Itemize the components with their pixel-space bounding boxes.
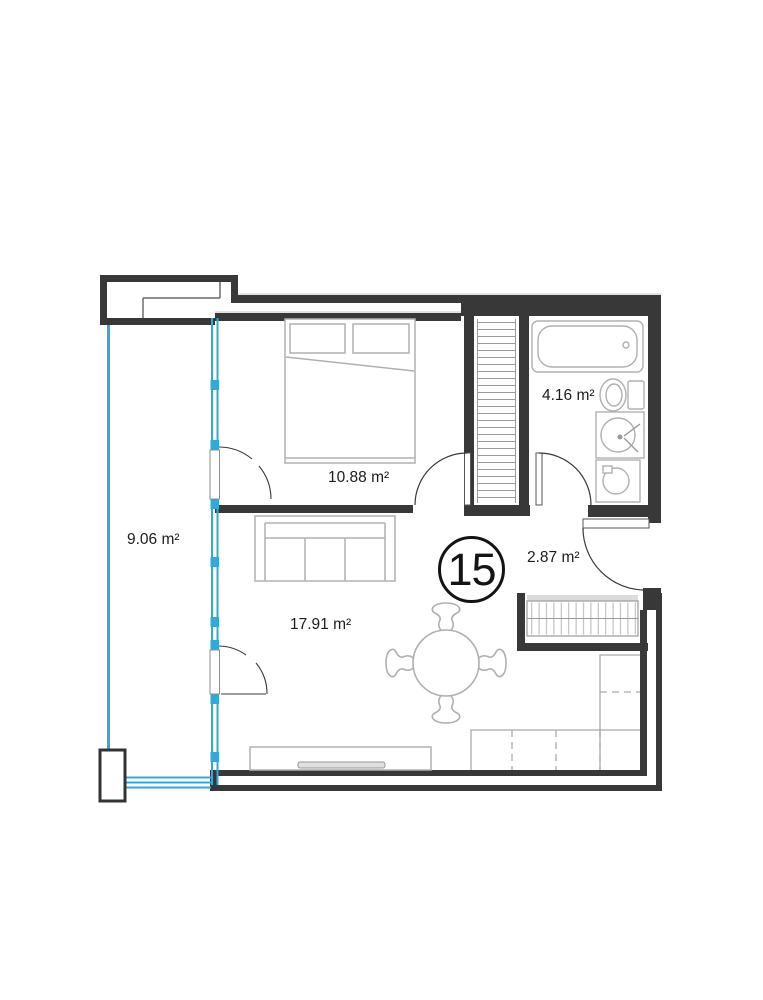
- tv-cabinet: [250, 747, 431, 770]
- room-label-living: 17.91 m²: [290, 616, 351, 634]
- room-label-bathroom: 4.16 m²: [542, 387, 595, 405]
- bed: [285, 319, 415, 463]
- room-label-bedroom: 10.88 m²: [328, 469, 389, 487]
- tv: [298, 762, 385, 768]
- washbasin: [596, 412, 644, 458]
- balcony-column: [100, 750, 125, 801]
- living-balcony-door-opening: [210, 650, 220, 694]
- bathroom-door: [536, 453, 591, 505]
- floor-plan: 9.06 m² 10.88 m² 4.16 m² 2.87 m² 17.91 m…: [0, 0, 763, 1000]
- living-balcony-door-swing: [219, 646, 267, 694]
- washing-machine: [596, 460, 640, 502]
- bedroom-balcony-door-swing: [219, 447, 271, 499]
- bedroom-balcony-door-opening: [210, 450, 220, 499]
- vestibule-inner-lines: [143, 282, 220, 318]
- unit-number: 15: [447, 547, 495, 592]
- bedroom-door: [415, 453, 471, 505]
- chair-icon: [477, 649, 506, 676]
- sofa: [255, 516, 395, 581]
- chair-icon: [432, 603, 459, 632]
- chair-icon: [386, 649, 415, 676]
- dining-set: [386, 603, 506, 723]
- dining-table: [413, 630, 479, 696]
- window-wall: [210, 318, 220, 785]
- room-label-balcony: 9.06 m²: [127, 531, 180, 549]
- entry-radiator: [527, 595, 638, 636]
- bathtub: [532, 321, 643, 372]
- chair-icon: [432, 694, 459, 723]
- duct-shaft: [477, 319, 516, 503]
- entrance-door: [583, 519, 649, 590]
- room-label-hallway: 2.87 m²: [527, 549, 580, 567]
- toilet: [600, 379, 644, 411]
- unit-number-badge: 15: [438, 536, 505, 603]
- floor-plan-drawing: [0, 0, 763, 1000]
- balcony-railing: [107, 325, 211, 789]
